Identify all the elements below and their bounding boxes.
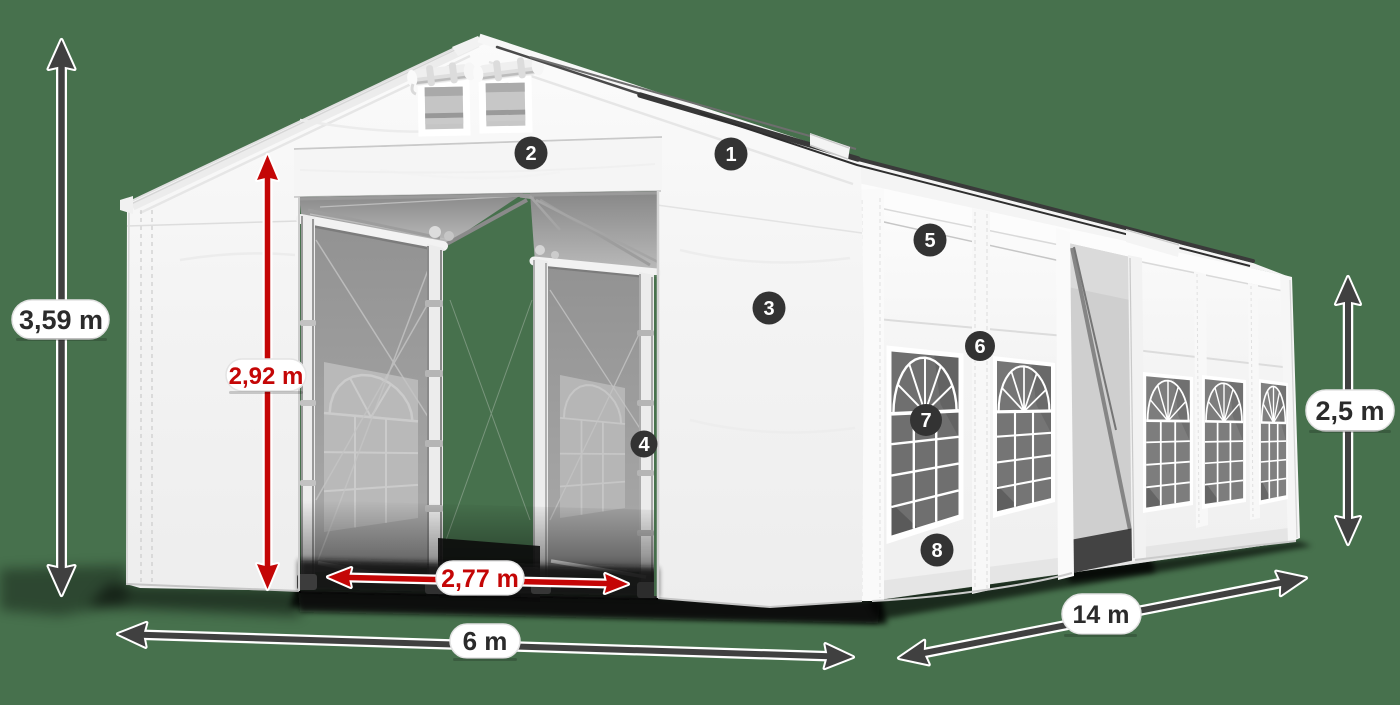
svg-text:2,92 m: 2,92 m <box>229 363 304 390</box>
svg-text:7: 7 <box>920 410 931 432</box>
svg-text:5: 5 <box>924 230 935 252</box>
svg-text:2,77 m: 2,77 m <box>441 565 519 593</box>
svg-text:8: 8 <box>931 540 942 562</box>
svg-text:6: 6 <box>974 336 985 358</box>
svg-text:3,59 m: 3,59 m <box>19 305 103 335</box>
svg-text:2,5 m: 2,5 m <box>1315 396 1384 426</box>
svg-text:3: 3 <box>763 298 774 320</box>
svg-text:2: 2 <box>525 143 536 165</box>
svg-text:1: 1 <box>725 144 736 166</box>
svg-text:14 m: 14 m <box>1073 601 1130 629</box>
svg-text:4: 4 <box>638 434 650 456</box>
svg-text:6 m: 6 m <box>463 626 508 656</box>
